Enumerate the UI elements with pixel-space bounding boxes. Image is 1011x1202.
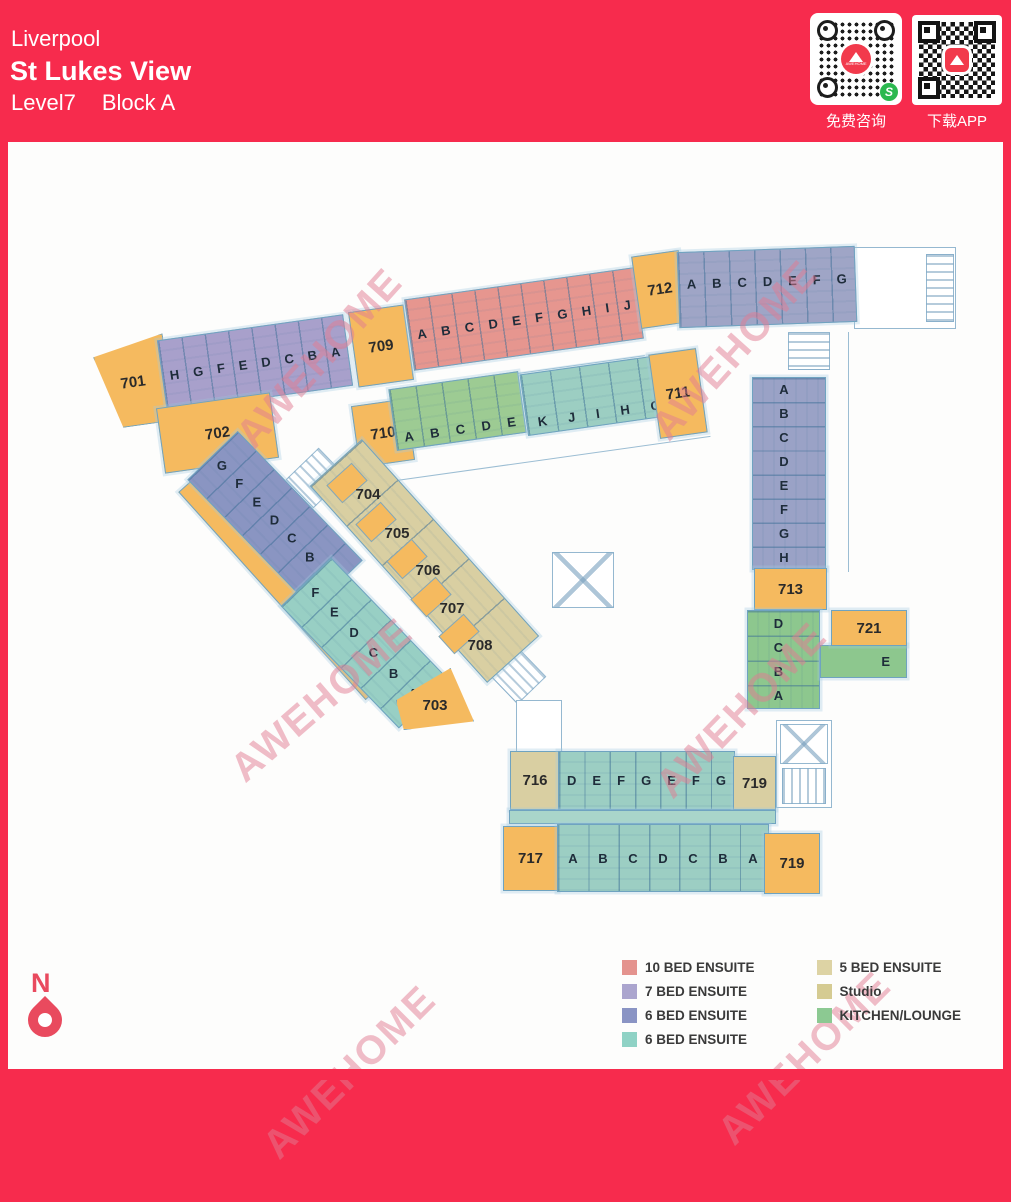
stairs-outline: [788, 332, 830, 370]
room-letter: C: [688, 852, 697, 865]
building-title: St Lukes View: [10, 56, 191, 87]
room-letter: K: [537, 414, 548, 428]
room-letter: D: [779, 455, 788, 468]
city-label: Liverpool: [11, 26, 100, 52]
room-letter: D: [567, 774, 576, 787]
room-letter: B: [305, 550, 314, 563]
header-banner: Liverpool St Lukes View Level7Block A AW…: [0, 0, 1011, 142]
room-letter: C: [284, 351, 295, 365]
room-letter: A: [330, 345, 341, 359]
room-letter: E: [780, 479, 789, 492]
studio-number-706: 706: [408, 561, 448, 579]
flat-number-721: 721: [832, 611, 906, 645]
legend-item: 10 BED ENSUITE: [622, 960, 755, 975]
room-letter: F: [216, 361, 226, 375]
awehome-logo-icon: AWEHOME: [841, 44, 871, 74]
room-letter: C: [779, 431, 788, 444]
wechat-qr-code: AWEHOME S: [810, 13, 902, 105]
qr-finder-icon: [817, 20, 838, 41]
legend-column-left: 10 BED ENSUITE 7 BED ENSUITE 6 BED ENSUI…: [622, 960, 755, 1047]
room-letter: E: [331, 605, 340, 618]
corridor-outline: [516, 700, 562, 754]
room-letter: A: [403, 429, 414, 443]
flat-number-717: 717: [504, 827, 557, 890]
stairs-outline: [926, 254, 954, 322]
flat-number-709: 709: [349, 306, 413, 387]
flat-721-rooms: DCBA: [747, 610, 820, 709]
room-letter: B: [389, 666, 398, 679]
legend-swatch: [622, 1008, 637, 1023]
bottom-band-corridor: [509, 810, 776, 824]
legend-item: 6 BED ENSUITE: [622, 1032, 755, 1047]
room-letter: G: [217, 459, 227, 472]
corridor-wall-line: [848, 332, 849, 572]
room-letter: C: [288, 531, 297, 544]
room-letter: E: [506, 415, 516, 429]
legend-label: 7 BED ENSUITE: [645, 984, 747, 999]
room-letter: H: [581, 303, 592, 317]
flat-717-lounge: 717: [503, 826, 558, 891]
flat-719-top-lounge: 719: [733, 756, 776, 810]
lift-core-outline: [552, 552, 614, 608]
legend-swatch: [622, 984, 637, 999]
flat-721-room-e: E: [820, 645, 907, 678]
flat-712-rooms: ABCDEFG: [677, 246, 858, 328]
qr-finder-icon: [918, 21, 940, 43]
house-icon: [950, 55, 964, 65]
room-letter: B: [440, 323, 451, 337]
app-qr-caption: 下载APP: [901, 110, 1011, 131]
room-letter: C: [737, 275, 747, 288]
legend-label: 6 BED ENSUITE: [645, 1032, 747, 1047]
legend-item: 5 BED ENSUITE: [817, 960, 962, 975]
room-letter: J: [622, 298, 631, 312]
studio-number-707: 707: [432, 599, 472, 617]
north-arrow-icon: [21, 996, 69, 1044]
legend-item: Studio: [817, 984, 962, 999]
studio-number-704: 704: [348, 485, 388, 503]
room-letter: E: [511, 313, 521, 327]
flat-713-rooms: ABCDEFGH: [752, 377, 826, 570]
flat-719-bottom-lounge: 719: [764, 833, 820, 894]
bottom-band-top-rooms: DEFGEFG: [558, 751, 735, 810]
room-letter: B: [712, 276, 722, 289]
room-letter: H: [169, 367, 180, 381]
lift-outline: [780, 724, 828, 764]
qr-finder-icon: [817, 77, 838, 98]
house-icon: [849, 52, 863, 62]
stairs-outline: [782, 768, 826, 804]
wechat-icon: S: [880, 83, 898, 101]
legend-swatch: [622, 960, 637, 975]
legend: 10 BED ENSUITE 7 BED ENSUITE 6 BED ENSUI…: [622, 960, 961, 1047]
legend-label: 5 BED ENSUITE: [840, 960, 942, 975]
studio-number-705: 705: [377, 524, 417, 542]
logo-text: AWEHOME: [846, 62, 867, 66]
qr-finder-icon: [874, 20, 895, 41]
level-label: Level7: [11, 90, 76, 115]
legend-item: 6 BED ENSUITE: [622, 1008, 755, 1023]
legend-column-right: 5 BED ENSUITE Studio KITCHEN/LOUNGE: [817, 960, 962, 1047]
room-letter: D: [350, 626, 359, 639]
flat-716-lounge: 716: [510, 751, 560, 810]
north-label: N: [31, 968, 82, 999]
studio-number-708: 708: [460, 636, 500, 654]
room-letter: E: [881, 655, 890, 668]
room-letter: E: [253, 495, 262, 508]
legend-swatch: [622, 1032, 637, 1047]
north-indicator: N: [22, 968, 82, 1037]
room-letter: F: [692, 774, 700, 787]
room-letter: C: [628, 852, 637, 865]
room-letter: F: [312, 586, 320, 599]
room-letter: C: [455, 422, 466, 436]
room-letter: A: [748, 852, 757, 865]
room-letter: E: [592, 774, 601, 787]
room-letter: B: [598, 852, 607, 865]
room-letter: B: [774, 665, 783, 678]
room-letter: G: [716, 774, 726, 787]
room-letter: F: [780, 503, 788, 516]
awehome-logo-icon: [945, 48, 969, 72]
room-letter: G: [779, 527, 789, 540]
bottom-band-bottom-rooms: ABCDCBA: [557, 824, 769, 892]
room-letter: A: [568, 852, 577, 865]
flat-number-713: 713: [755, 569, 826, 609]
app-download-qr-code: [912, 15, 1002, 105]
room-letter: I: [595, 407, 600, 420]
room-letter: G: [836, 272, 847, 285]
room-letter: A: [774, 689, 783, 702]
room-letter: E: [788, 273, 797, 286]
legend-label: 10 BED ENSUITE: [645, 960, 755, 975]
room-letter: I: [605, 301, 610, 314]
room-letter: F: [534, 310, 544, 324]
legend-label: Studio: [840, 984, 882, 999]
room-letter: A: [687, 277, 697, 290]
room-letter: C: [369, 646, 378, 659]
room-letter: F: [813, 273, 821, 286]
legend-swatch: [817, 1008, 832, 1023]
block-label: Block A: [102, 90, 175, 115]
qr-finder-icon: [918, 77, 940, 99]
level-block-label: Level7Block A: [11, 90, 175, 116]
room-letter: H: [779, 551, 788, 564]
room-letter: D: [260, 354, 271, 368]
flat-number-711: 711: [649, 349, 706, 438]
legend-label: 6 BED ENSUITE: [645, 1008, 747, 1023]
room-letter: B: [779, 407, 788, 420]
room-letter: D: [763, 274, 773, 287]
room-letter: A: [416, 326, 427, 340]
room-letter: G: [641, 774, 651, 787]
room-letter: C: [774, 641, 783, 654]
flat-721-lounge: 721: [831, 610, 907, 646]
legend-item: 7 BED ENSUITE: [622, 984, 755, 999]
wechat-qr-caption: 免费咨询: [800, 110, 912, 131]
room-letter: J: [567, 410, 576, 424]
legend-label: KITCHEN/LOUNGE: [840, 1008, 962, 1023]
room-letter: H: [620, 403, 631, 417]
flat-709-lounge: 709: [348, 304, 414, 387]
room-letter: E: [238, 358, 248, 372]
flat-number-716: 716: [511, 752, 559, 809]
flat-713-lounge: 713: [754, 568, 827, 610]
qr-finder-icon: [974, 21, 996, 43]
room-letter: G: [556, 306, 568, 320]
room-letter: A: [779, 383, 788, 396]
bottom-red-strip: [0, 1069, 1011, 1080]
room-letter: D: [774, 617, 783, 630]
room-letter: D: [487, 316, 498, 330]
room-letter: B: [718, 852, 727, 865]
room-letter: D: [658, 852, 667, 865]
room-letter: F: [236, 477, 244, 490]
room-letter: C: [464, 320, 475, 334]
room-letter: B: [429, 426, 440, 440]
flat-number-719-bottom: 719: [765, 834, 819, 893]
legend-swatch: [817, 984, 832, 999]
legend-item: KITCHEN/LOUNGE: [817, 1008, 962, 1023]
room-letter: B: [307, 348, 318, 362]
room-letter: D: [481, 419, 492, 433]
legend-swatch: [817, 960, 832, 975]
room-letter: G: [192, 364, 204, 378]
room-letter: F: [617, 774, 625, 787]
room-letter: D: [270, 513, 279, 526]
room-letter: E: [667, 774, 676, 787]
flat-number-719-top: 719: [734, 757, 775, 809]
